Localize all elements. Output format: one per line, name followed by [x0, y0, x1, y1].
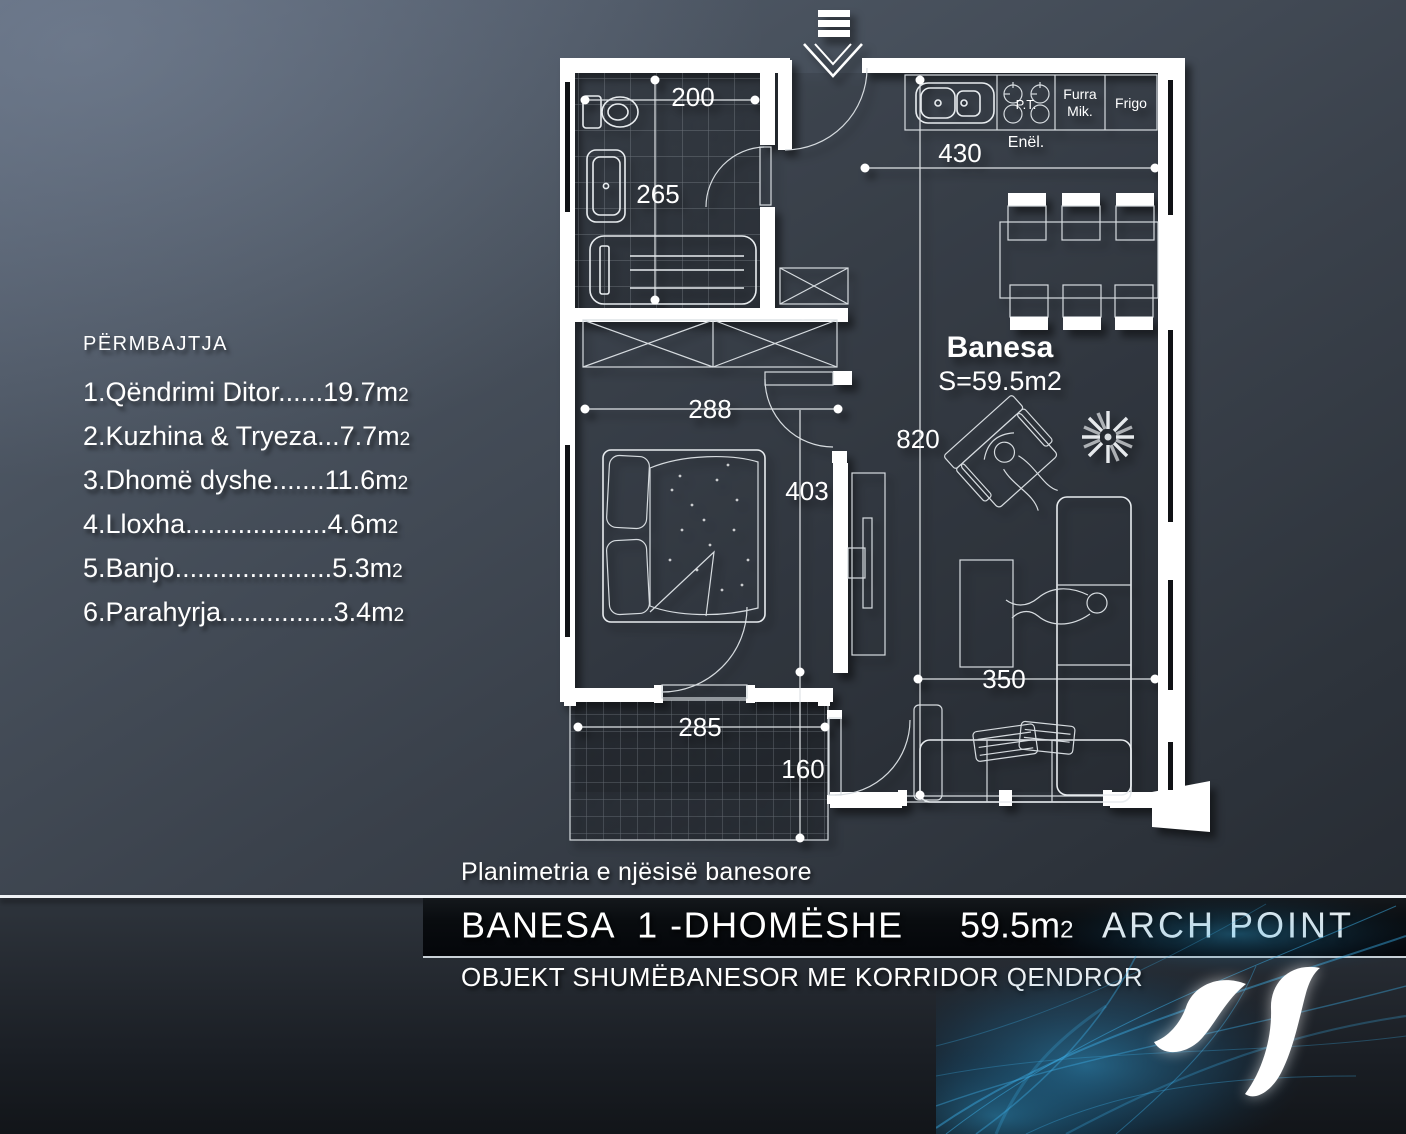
cooktop-label: P.T. — [1016, 97, 1037, 112]
dim-bath-height: 265 — [636, 179, 679, 209]
band-area: 59.5m2 — [960, 904, 1073, 946]
plan-caption: Planimetria e njësisë banesore — [461, 858, 812, 887]
legend-item: 5.Banjo.....................5.3m2 — [83, 548, 410, 592]
entrance-door-leaf — [778, 60, 792, 150]
legend-item-sub: 2 — [394, 605, 405, 626]
subtitle: OBJEKT SHUMËBANESOR ME KORRIDOR QENDROR — [461, 962, 1143, 993]
legend-item: 6.Parahyrja...............3.4m2 — [83, 592, 410, 636]
legend-item: 1.Qëndrimi Ditor......19.7m2 — [83, 372, 410, 416]
dim-bed-width: 288 — [688, 394, 731, 424]
legend-item-text: 3.Dhomë dyshe.......11.6m — [83, 465, 398, 495]
legend-item: 2.Kuzhina & Tryeza...7.7m2 — [83, 416, 410, 460]
legend-item-sub: 2 — [398, 385, 409, 406]
entrance-arrow — [804, 10, 862, 76]
band-area-value: 59.5m — [960, 904, 1060, 945]
dim-bath-width: 200 — [671, 82, 714, 112]
legend-item-sub: 2 — [388, 517, 399, 538]
dim-balcony-height: 160 — [781, 754, 824, 784]
dim-balcony-width: 285 — [678, 712, 721, 742]
band-title: BANESA 1 -DHOMËSHE — [461, 904, 904, 946]
dishes-label: Enël. — [1008, 134, 1044, 151]
poster-stage: PËRMBAJTJA 1.Qëndrimi Ditor......19.7m2 … — [0, 0, 1406, 1134]
oven-label-1: Furra — [1063, 86, 1097, 102]
legend-item-sub: 2 — [400, 429, 411, 450]
legend-item-text: 5.Banjo.....................5.3m — [83, 553, 392, 583]
plant — [1082, 411, 1134, 463]
band-area-sub: 2 — [1060, 916, 1073, 943]
fridge-label: Frigo — [1115, 95, 1147, 111]
dim-kitchen-width: 430 — [938, 138, 981, 168]
legend-item-sub: 2 — [398, 473, 409, 494]
legend-item-sub: 2 — [392, 561, 403, 582]
dim-bed-height: 403 — [785, 476, 828, 506]
legend-item: 3.Dhomë dyshe.......11.6m2 — [83, 460, 410, 504]
floor-plan: P.T. Furra Mik. Frigo Enël. — [552, 0, 1212, 860]
legend-title: PËRMBAJTJA — [83, 333, 410, 356]
brand-name: ARCH POINT — [1102, 904, 1354, 946]
legend-item-text: 4.Lloxha...................4.6m — [83, 509, 388, 539]
unit-area: S=59.5m2 — [938, 366, 1062, 396]
legend-item-text: 2.Kuzhina & Tryeza...7.7m — [83, 421, 400, 451]
oven-label-2: Mik. — [1067, 103, 1093, 119]
unit-label: Banesa — [947, 331, 1054, 364]
dim-living-height: 820 — [896, 424, 939, 454]
legend-item-text: 1.Qëndrimi Ditor......19.7m — [83, 377, 398, 407]
legend: PËRMBAJTJA 1.Qëndrimi Ditor......19.7m2 … — [83, 333, 410, 636]
title-band: BANESA 1 -DHOMËSHE 59.5m2 ARCH POINT — [423, 898, 1406, 958]
dim-living-width: 350 — [982, 664, 1025, 694]
legend-item-text: 6.Parahyrja...............3.4m — [83, 597, 394, 627]
legend-item: 4.Lloxha...................4.6m2 — [83, 504, 410, 548]
